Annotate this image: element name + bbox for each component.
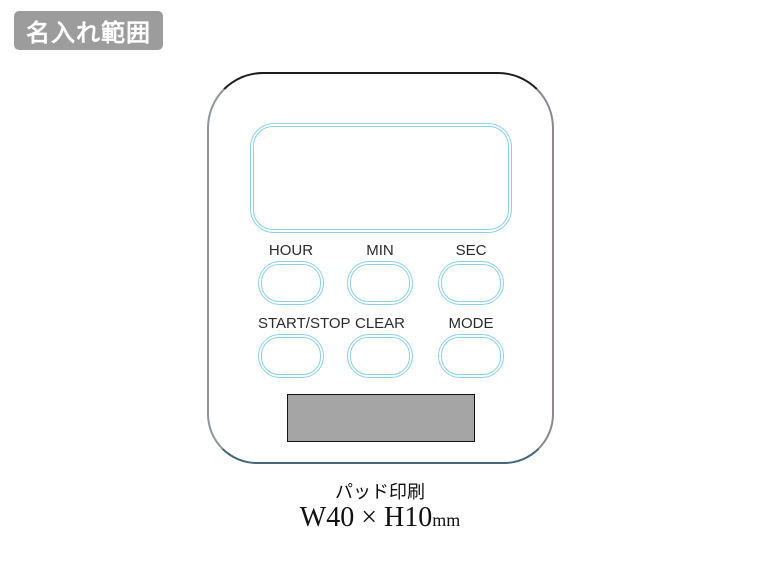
print-range-badge: 名入れ範囲 <box>14 11 163 50</box>
timer-display <box>250 123 512 233</box>
button-group-mode: MODE <box>438 315 504 378</box>
hour-button <box>258 261 324 305</box>
min-button-label: MIN <box>347 242 413 259</box>
button-group-hour: HOUR <box>258 242 324 305</box>
min-button <box>347 261 413 305</box>
product-spec-image: 名入れ範囲 HOUR MIN SEC START/STOP CLEAR MODE <box>0 0 760 570</box>
print-range-badge-label: 名入れ範囲 <box>26 13 151 48</box>
button-group-start-stop: START/STOP <box>258 315 324 378</box>
clear-button <box>347 334 413 378</box>
print-method-text: パッド印刷 <box>0 481 760 503</box>
button-group-sec: SEC <box>438 242 504 305</box>
clear-button-label: CLEAR <box>347 315 413 332</box>
print-size-text: W40 × H10mm <box>0 503 760 535</box>
mode-button <box>438 334 504 378</box>
hour-button-label: HOUR <box>258 242 324 259</box>
timer-body: HOUR MIN SEC START/STOP CLEAR MODE <box>207 72 554 464</box>
mode-button-label: MODE <box>438 315 504 332</box>
start-stop-button-label: START/STOP <box>258 315 324 332</box>
button-group-clear: CLEAR <box>347 315 413 378</box>
start-stop-button <box>258 334 324 378</box>
print-area <box>287 394 475 442</box>
sec-button-label: SEC <box>438 242 504 259</box>
print-size-value: W40 × H10 <box>300 502 432 533</box>
caption: パッド印刷 W40 × H10mm <box>0 481 760 535</box>
button-group-min: MIN <box>347 242 413 305</box>
print-size-unit: mm <box>432 510 460 530</box>
sec-button <box>438 261 504 305</box>
